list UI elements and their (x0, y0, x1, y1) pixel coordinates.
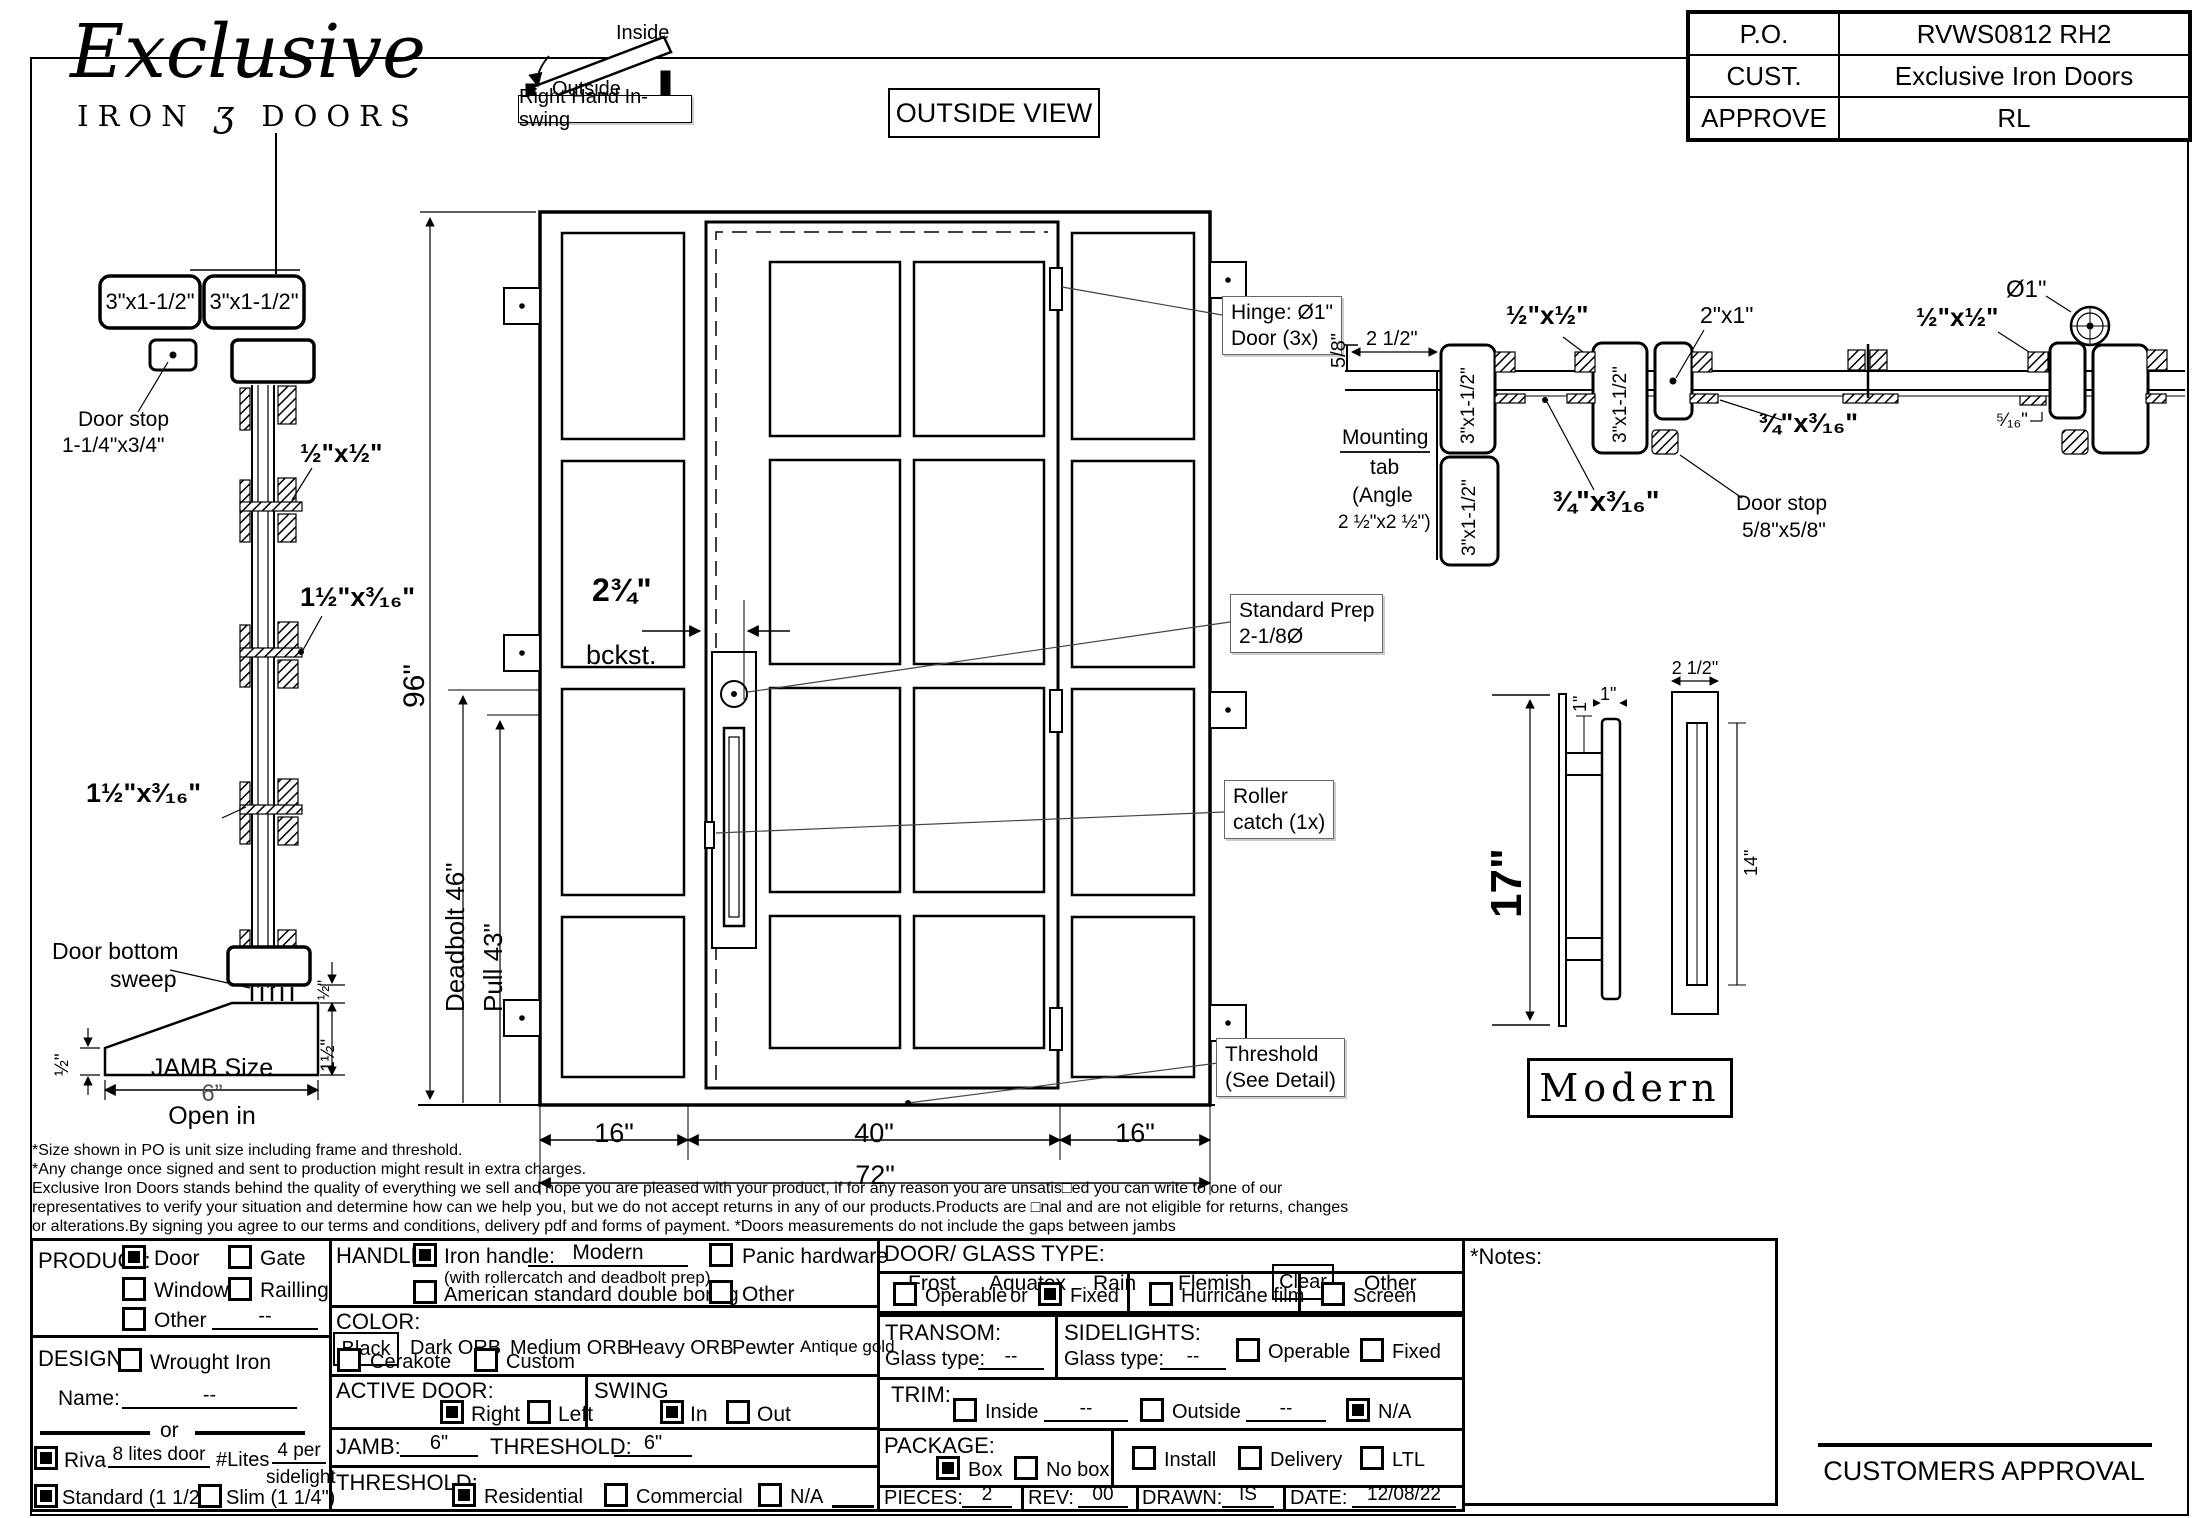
glass-fixed-checkbox[interactable] (1038, 1282, 1062, 1306)
handle-14: 14" (1741, 850, 1762, 876)
disclaimer-line-4: representatives to verify your situation… (32, 1199, 1348, 1217)
handle-iron-field[interactable]: Modern (528, 1241, 688, 1267)
design-riva-checkbox[interactable] (34, 1446, 58, 1470)
handle-panic-label: Panic hardware (742, 1245, 888, 1269)
po-table: P.O. RVWS0812 RH2 CUST. Exclusive Iron D… (1686, 10, 2192, 142)
po-value: RVWS0812 RH2 (1839, 13, 2189, 55)
cust-value: Exclusive Iron Doors (1839, 55, 2189, 97)
date-label: DATE: (1290, 1487, 1347, 1510)
transom-label: TRANSOM: (885, 1320, 1001, 1346)
design-or-label: or (160, 1419, 179, 1443)
product-gate-label: Gate (260, 1247, 306, 1271)
color-antiquegold-label[interactable]: Antique gold (800, 1337, 895, 1357)
product-railing-checkbox[interactable] (228, 1277, 252, 1301)
product-door-checkbox[interactable] (122, 1245, 146, 1269)
package-box-checkbox[interactable] (936, 1456, 960, 1480)
handle-1a: 1" (1570, 696, 1591, 712)
transom-glasstype-field[interactable]: -- (978, 1346, 1044, 1370)
approve-value: RL (1839, 97, 2189, 139)
design-slim-checkbox[interactable] (198, 1484, 222, 1508)
date-field[interactable]: 12/08/22 (1352, 1484, 1456, 1508)
sidelights-operable-label: Operable (1268, 1341, 1350, 1364)
dim-pull: Pull 43" (478, 923, 509, 1012)
dim-half-right: ½" (314, 980, 334, 1000)
dim-16-right: 16" (1115, 1118, 1155, 1149)
product-other-field[interactable]: -- (212, 1305, 318, 1330)
dim-deadbolt: Deadbolt 46" (440, 863, 471, 1012)
glass-screen-label: Screen (1353, 1285, 1416, 1308)
handle-style-label: Modern (1539, 1066, 1720, 1110)
ship-delivery-checkbox[interactable] (1238, 1446, 1262, 1470)
section-tube1: 3"x1-1/2" (1458, 367, 1480, 444)
clip-a-label: 1½"x³⁄₁₆" (300, 582, 415, 613)
logo-fleur-icon: ʒ (214, 94, 243, 135)
jamb-label: JAMB: (336, 1434, 401, 1460)
roller-callout: Roller catch (1x) (1224, 780, 1334, 839)
color-pewter-label[interactable]: Pewter (732, 1337, 794, 1360)
trim-outside-checkbox[interactable] (1140, 1398, 1164, 1422)
roller-callout-line1: Roller (1233, 784, 1325, 810)
threshold-callout-line1: Threshold (1225, 1042, 1336, 1068)
jamb-threshold-label: THRESHOLD: (490, 1434, 632, 1460)
hinge-callout: Hinge: Ø1" Door (3x) (1222, 296, 1342, 355)
sweep-label-2: sweep (110, 966, 176, 993)
outside-view-box: OUTSIDE VIEW (888, 88, 1100, 138)
clip-half-label: ½"x½" (300, 438, 382, 469)
ship-install-label: Install (1164, 1449, 1216, 1472)
handle-other-checkbox[interactable] (709, 1280, 733, 1304)
transom-glasstype-label: Glass type: (885, 1348, 985, 1371)
door-stop-label-1: Door stop (78, 408, 169, 432)
sidelights-fixed-checkbox[interactable] (1360, 1338, 1384, 1362)
mounting-tab-4: 2 ½"x2 ½") (1338, 512, 1431, 534)
section-212: 2 1/2" (1366, 328, 1418, 351)
rev-label: REV: (1028, 1487, 1074, 1510)
notes-label: *Notes: (1470, 1244, 1542, 1270)
jamb-tube-left: 3"x1-1/2" (100, 276, 200, 328)
disclaimer-line-3: Exclusive Iron Doors stands behind the q… (32, 1180, 1282, 1198)
glass-or-label: or (1010, 1285, 1028, 1308)
design-standard-checkbox[interactable] (34, 1484, 58, 1508)
jamb-threshold-field[interactable]: 6" (614, 1432, 692, 1457)
threshold-residential-label: Residential (484, 1486, 583, 1509)
design-lites-field[interactable]: 4 per (272, 1440, 326, 1464)
handle-212: 2 1/2" (1672, 658, 1718, 679)
design-slim-label: Slim (1 1/4") (226, 1487, 335, 1510)
design-wrought-checkbox[interactable] (118, 1348, 142, 1372)
handle-panic-checkbox[interactable] (709, 1243, 733, 1267)
section-stop-1: Door stop (1736, 492, 1827, 516)
logo-sub-right: DOORS (261, 99, 419, 133)
product-other-checkbox[interactable] (122, 1307, 146, 1331)
section-tube3: 3"x1-1/2" (1610, 366, 1632, 443)
roller-callout-line2: catch (1x) (1233, 810, 1325, 836)
pieces-field[interactable]: 2 (962, 1484, 1012, 1508)
drawn-field[interactable]: IS (1222, 1484, 1274, 1508)
logo-script: Exclusive (48, 14, 448, 92)
handle-iron-checkbox[interactable] (413, 1243, 437, 1267)
swing-in-checkbox[interactable] (660, 1400, 684, 1424)
trim-outside-label: Outside (1172, 1401, 1241, 1424)
color-cerakote-checkbox[interactable] (337, 1348, 361, 1372)
trim-inside-checkbox[interactable] (953, 1398, 977, 1422)
hinge-callout-line1: Hinge: Ø1" (1231, 300, 1333, 326)
active-left-checkbox[interactable] (527, 1400, 551, 1424)
po-label: P.O. (1689, 13, 1839, 55)
trim-na-checkbox[interactable] (1346, 1398, 1370, 1422)
notes-area[interactable] (1466, 1270, 1772, 1500)
product-gate-checkbox[interactable] (228, 1245, 252, 1269)
sidelights-operable-checkbox[interactable] (1236, 1338, 1260, 1362)
sidelights-glasstype-field[interactable]: -- (1160, 1346, 1226, 1370)
active-left-label: Left (558, 1403, 593, 1427)
section-dia1: Ø1" (2006, 276, 2047, 304)
glass-fixed-label: Fixed (1070, 1285, 1119, 1308)
backset-value: 2¾" (592, 572, 652, 609)
swing-label-box: Right Hand In-swing (518, 95, 692, 123)
active-right-checkbox[interactable] (440, 1400, 464, 1424)
dim-16-left: 16" (594, 1118, 634, 1149)
handle-1b: 1" (1600, 684, 1616, 705)
section-stop-2: 5/8"x5/8" (1742, 519, 1826, 543)
package-box-label: Box (968, 1459, 1002, 1482)
color-heavyorb-label[interactable]: Heavy ORB (628, 1337, 734, 1360)
handle-style-box: Modern (1527, 1058, 1733, 1118)
mounting-tab-3: (Angle (1352, 484, 1413, 508)
handle-17: 17" (1482, 848, 1532, 918)
threshold-residential-checkbox[interactable] (452, 1483, 476, 1507)
active-right-label: Right (471, 1403, 520, 1427)
sidelights-fixed-label: Fixed (1392, 1341, 1441, 1364)
jamb-tube-right: 3"x1-1/2" (204, 276, 304, 328)
design-standard-label: Standard (1 1/2") (62, 1487, 214, 1510)
dim-96: 96" (398, 664, 432, 708)
design-lites-label: #Lites (216, 1449, 269, 1472)
dim-40: 40" (854, 1118, 894, 1149)
disclaimer-line-1: *Size shown in PO is unit size including… (32, 1142, 462, 1160)
ship-install-checkbox[interactable] (1132, 1446, 1156, 1470)
ship-ltl-label: LTL (1392, 1449, 1425, 1472)
logo: Exclusive IRON ʒ DOORS (48, 14, 448, 135)
trim-na-label: N/A (1378, 1401, 1411, 1424)
package-nobox-label: No box (1046, 1459, 1109, 1482)
clip-b-label: 1½"x³⁄₁₆" (86, 778, 201, 809)
section-12x12-b: ½"x½" (1916, 302, 1998, 333)
ship-delivery-label: Delivery (1270, 1449, 1342, 1472)
door-elevation-drawing (418, 212, 1246, 1195)
rev-field[interactable]: 00 (1078, 1484, 1128, 1508)
threshold-na-checkbox[interactable] (758, 1483, 782, 1507)
jamb-tube-left-label: 3"x1-1/2" (106, 289, 195, 315)
glass-operable-label: Operable (925, 1285, 1007, 1308)
design-riva-field[interactable]: 8 lites door (108, 1444, 210, 1468)
section-tube2: 3"x1-1/2" (1459, 479, 1481, 556)
trim-outside-field[interactable]: -- (1246, 1398, 1326, 1422)
swing-in-label: In (690, 1403, 708, 1427)
trim-inside-label: Inside (985, 1401, 1038, 1424)
jamb-field[interactable]: 6" (400, 1432, 478, 1457)
glass-type-label: DOOR/ GLASS TYPE: (884, 1241, 1105, 1267)
product-door-label: Door (154, 1247, 200, 1271)
section-2x1: 2"x1" (1700, 302, 1753, 329)
logo-sub-left: IRON (77, 99, 195, 133)
handle-american-checkbox[interactable] (413, 1280, 437, 1304)
section-34a: ¾"x³⁄₁₆" (1758, 408, 1858, 439)
design-riva-label: Riva (64, 1449, 106, 1473)
backset-word: bckst. (586, 640, 657, 671)
glass-operable-checkbox[interactable] (893, 1282, 917, 1306)
cust-label: CUST. (1689, 55, 1839, 97)
mounting-tab-1: Mounting (1342, 426, 1428, 450)
section-516: ⁵⁄₁₆" (1996, 410, 2028, 432)
drawing-sheet: Exclusive IRON ʒ DOORS Inside Outside Ri… (0, 0, 2194, 1518)
swing-out-checkbox[interactable] (726, 1400, 750, 1424)
threshold-callout: Threshold (See Detail) (1216, 1038, 1345, 1097)
open-in-label: Open in (168, 1102, 256, 1131)
design-name-label: Name: (58, 1387, 120, 1411)
threshold-na-blank[interactable] (832, 1505, 874, 1508)
section-12x12: ½"x½" (1506, 300, 1588, 331)
glass-hurricane-label: Hurricane film (1181, 1285, 1304, 1308)
product-window-checkbox[interactable] (122, 1277, 146, 1301)
disclaimer-line-5: or alterations.By signing you agree to o… (32, 1218, 1176, 1236)
hinge-callout-line2: Door (3x) (1231, 326, 1333, 352)
drawn-label: DRAWN: (1142, 1487, 1222, 1510)
prep-callout-line1: Standard Prep (1239, 598, 1374, 624)
or-line-left (40, 1431, 150, 1435)
glass-screen-checkbox[interactable] (1321, 1282, 1345, 1306)
prep-callout-line2: 2-1/8Ø (1239, 624, 1374, 650)
handle-other-label: Other (742, 1283, 795, 1307)
package-nobox-checkbox[interactable] (1014, 1456, 1038, 1480)
section-58: 5/8" (1328, 333, 1351, 368)
color-custom-checkbox[interactable] (474, 1348, 498, 1372)
sidelights-glasstype-label: Glass type: (1064, 1348, 1164, 1371)
color-custom-label: Custom (506, 1351, 575, 1374)
swing-inside-label: Inside (616, 22, 669, 45)
signature-line[interactable] (1818, 1443, 2152, 1447)
design-label: DESIGN: (38, 1346, 128, 1372)
swing-label: SWING (594, 1378, 669, 1404)
jamb-tube-right-label: 3"x1-1/2" (210, 289, 299, 315)
disclaimer-line-2: *Any change once signed and sent to prod… (32, 1161, 586, 1179)
or-line-right (195, 1431, 305, 1435)
design-lites-sub: sidelight (266, 1467, 336, 1489)
swing-type-label: Right Hand In-swing (519, 86, 691, 132)
threshold-callout-line2: (See Detail) (1225, 1068, 1336, 1094)
threshold-na-label: N/A (790, 1486, 823, 1509)
product-window-label: Window (154, 1279, 229, 1303)
sweep-label-1: Door bottom (52, 938, 179, 965)
approve-label: APPROVE (1689, 97, 1839, 139)
handle-american-label: American standard double boring (444, 1284, 739, 1307)
product-other-label: Other (154, 1309, 207, 1333)
dim-1half-right: 1½" (318, 1039, 340, 1072)
color-cerakote-label: Cerakote (370, 1351, 451, 1374)
dim-half-left: ½" (52, 1053, 74, 1076)
active-door-label: ACTIVE DOOR: (336, 1378, 494, 1404)
prep-callout: Standard Prep 2-1/8Ø (1230, 594, 1383, 653)
glass-hurricane-checkbox[interactable] (1149, 1282, 1173, 1306)
trim-label: TRIM: (891, 1382, 951, 1408)
design-wrought-label: Wrought Iron (150, 1351, 271, 1375)
design-name-field[interactable]: -- (122, 1384, 297, 1409)
jamb-size-label: JAMB Size (151, 1054, 273, 1083)
product-railing-label: Railling (260, 1279, 329, 1303)
swing-out-label: Out (757, 1403, 791, 1427)
outside-view-label: OUTSIDE VIEW (896, 98, 1093, 129)
door-stop-label-2: 1-1/4"x3/4" (62, 434, 164, 458)
customers-approval-label: CUSTOMERS APPROVAL (1823, 1456, 2145, 1487)
pieces-label: PIECES: (884, 1487, 963, 1510)
threshold-commercial-label: Commercial (636, 1486, 743, 1509)
mounting-tab-2: tab (1370, 456, 1399, 480)
trim-inside-field[interactable]: -- (1044, 1398, 1128, 1422)
sidelights-label: SIDELIGHTS: (1064, 1320, 1201, 1346)
threshold-commercial-checkbox[interactable] (604, 1483, 628, 1507)
ship-ltl-checkbox[interactable] (1360, 1446, 1384, 1470)
section-34b: ¾"x³⁄₁₆" (1552, 486, 1659, 519)
